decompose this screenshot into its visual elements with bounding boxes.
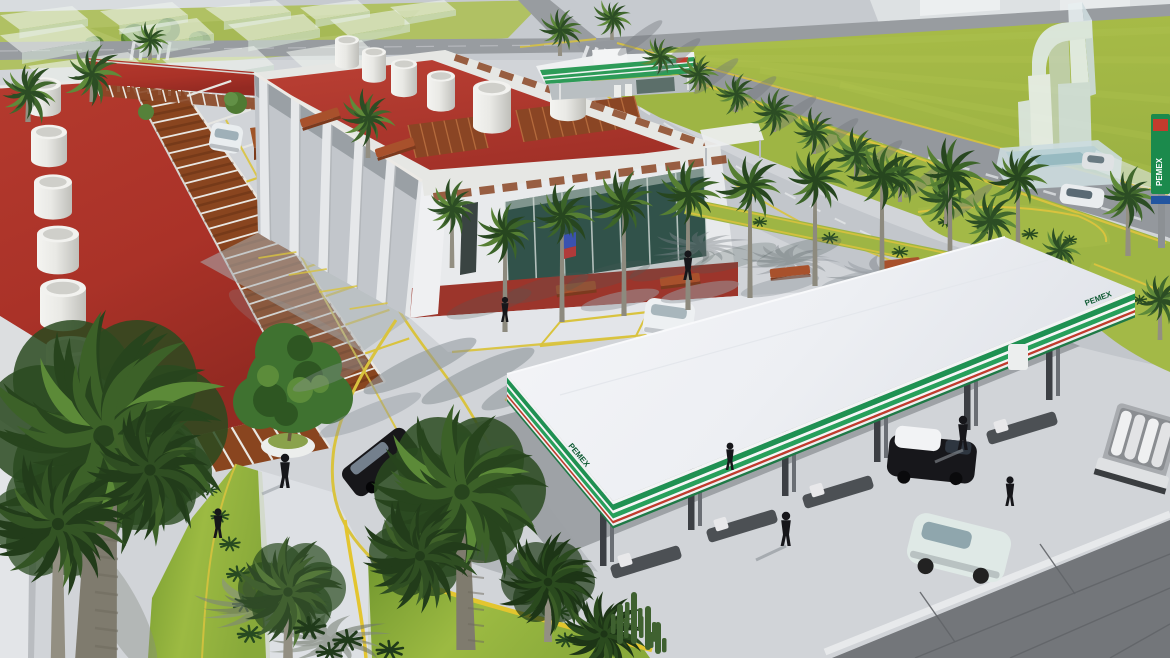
svg-text:PEMEX: PEMEX xyxy=(1155,157,1164,186)
